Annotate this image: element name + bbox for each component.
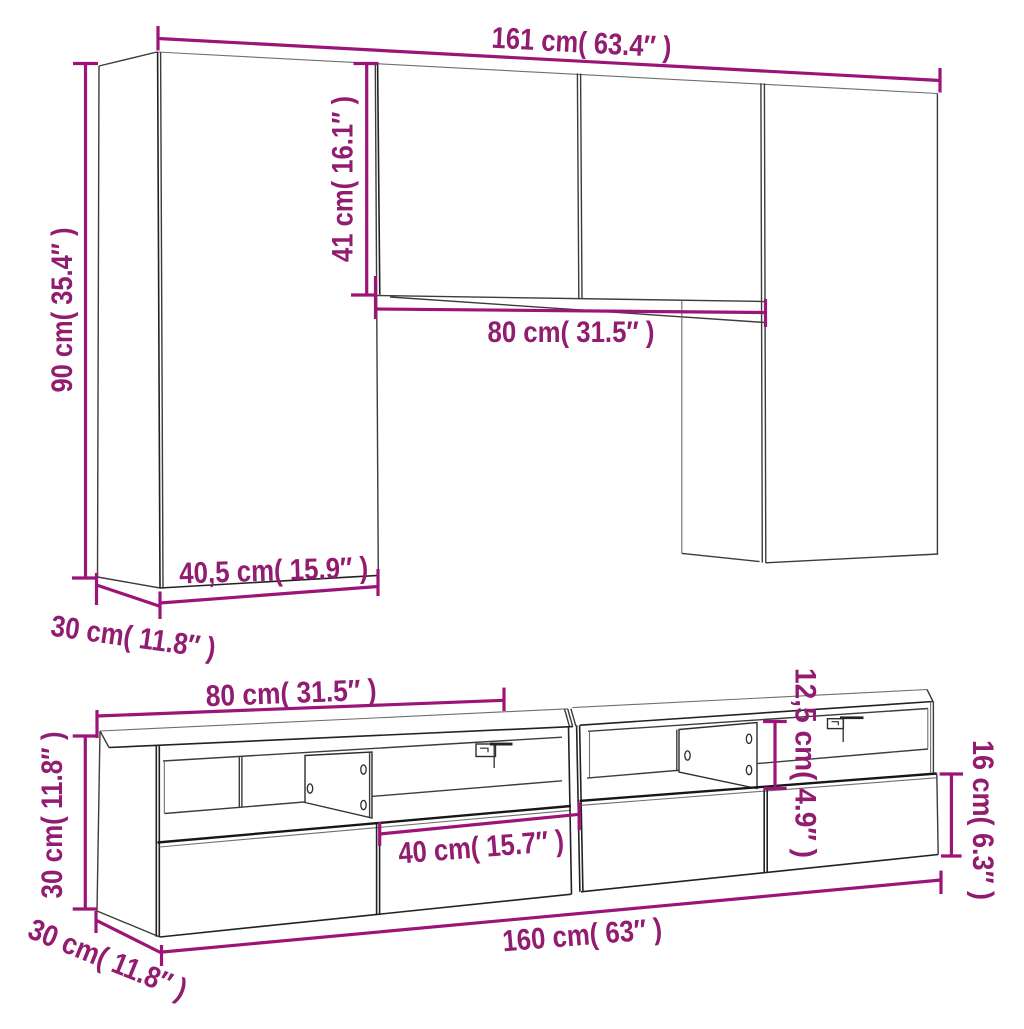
svg-text:12,5 cm( 4.9″ ): 12,5 cm( 4.9″ ) [789, 668, 822, 858]
svg-text:80 cm( 31.5″ ): 80 cm( 31.5″ ) [488, 316, 655, 349]
svg-text:30 cm( 11.8″ ): 30 cm( 11.8″ ) [36, 732, 69, 899]
svg-text:40,5 cm( 15.9″ ): 40,5 cm( 15.9″ ) [179, 552, 369, 591]
svg-text:16 cm( 6.3″ ): 16 cm( 6.3″ ) [966, 740, 999, 900]
svg-text:80 cm( 31.5″ ): 80 cm( 31.5″ ) [205, 674, 377, 714]
svg-text:90 cm( 35.4″ ): 90 cm( 35.4″ ) [46, 228, 79, 393]
svg-text:41 cm( 16.1″ ): 41 cm( 16.1″ ) [327, 96, 360, 262]
